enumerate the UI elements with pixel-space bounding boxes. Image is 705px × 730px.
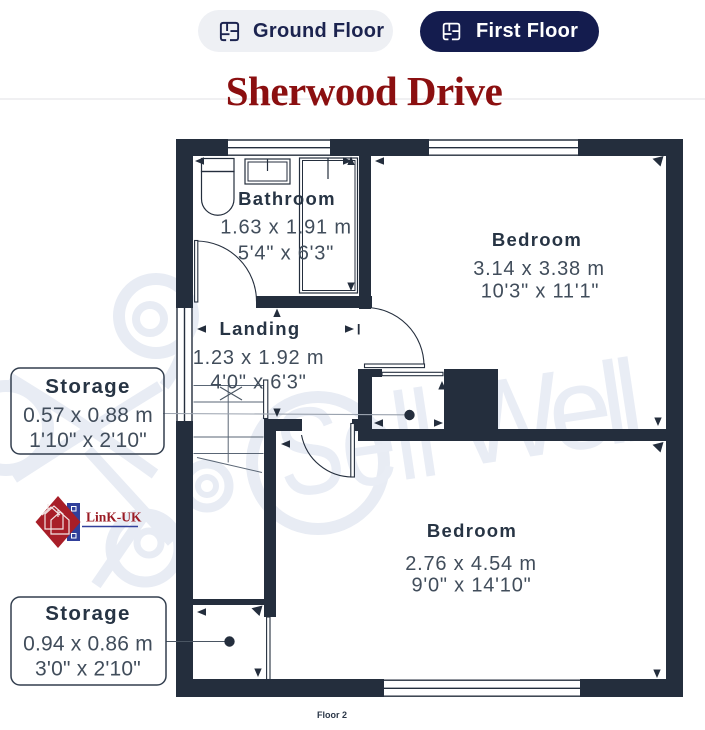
svg-text:0.57 x 0.88 m: 0.57 x 0.88 m [23, 404, 153, 427]
svg-text:LinK-UK: LinK-UK [86, 510, 142, 525]
svg-text:1.63 x 1.91 m: 1.63 x 1.91 m [220, 217, 352, 239]
svg-text:1'10" x 2'10": 1'10" x 2'10" [29, 429, 147, 452]
svg-text:Bedroom: Bedroom [492, 229, 582, 250]
svg-text:Bathroom: Bathroom [238, 188, 336, 209]
svg-text:3'0" x 2'10": 3'0" x 2'10" [35, 658, 141, 681]
svg-text:Bedroom: Bedroom [427, 520, 517, 541]
svg-text:10'3" x 11'1": 10'3" x 11'1" [481, 281, 600, 303]
svg-text:5'4" x 6'3": 5'4" x 6'3" [238, 243, 334, 265]
svg-text:1.23 x 1.92 m: 1.23 x 1.92 m [193, 347, 325, 369]
svg-text:3.14 x 3.38 m: 3.14 x 3.38 m [473, 258, 605, 280]
svg-text:Storage: Storage [45, 375, 130, 398]
svg-text:4'0" x 6'3": 4'0" x 6'3" [210, 371, 306, 393]
svg-text:Floor 2: Floor 2 [317, 710, 347, 720]
svg-text:0.94 x 0.86 m: 0.94 x 0.86 m [23, 633, 153, 656]
svg-text:9'0" x 14'10": 9'0" x 14'10" [411, 575, 531, 597]
svg-text:Storage: Storage [45, 602, 130, 625]
svg-text:2.76 x 4.54 m: 2.76 x 4.54 m [405, 553, 537, 575]
svg-text:Landing: Landing [219, 318, 300, 339]
